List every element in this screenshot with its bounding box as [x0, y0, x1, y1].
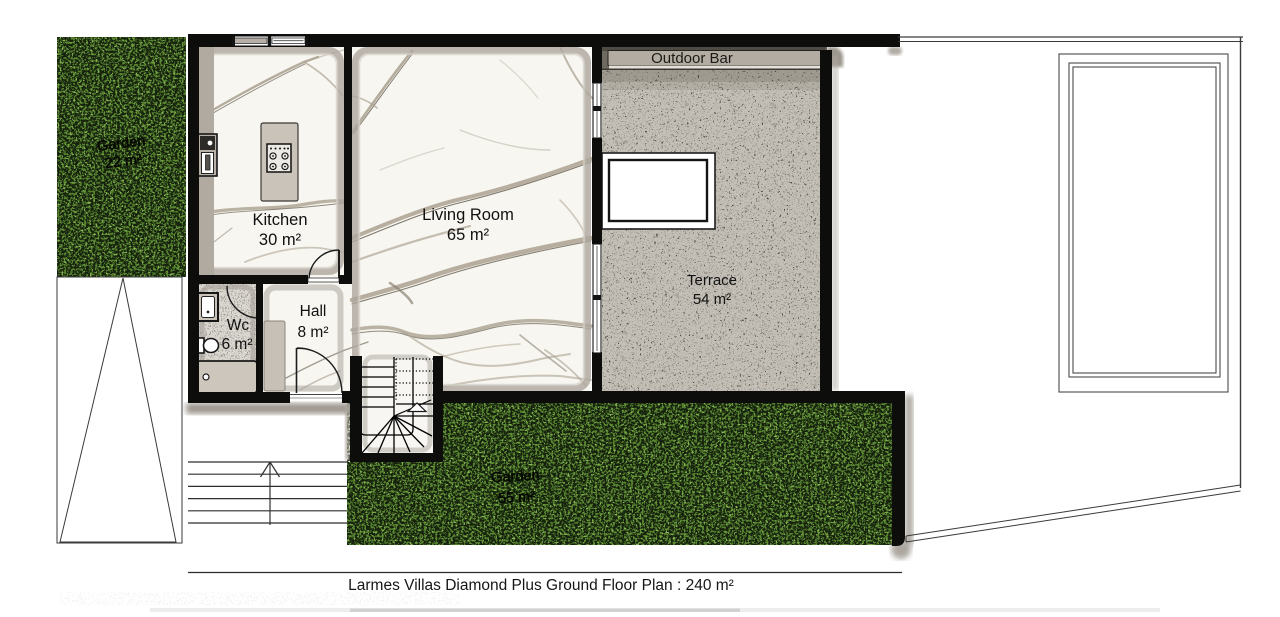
svg-text:Terrace: Terrace [687, 272, 737, 289]
svg-text:Larmes Villas Diamond Plus Gro: Larmes Villas Diamond Plus Ground Floor … [348, 577, 734, 594]
svg-text:Living Room: Living Room [422, 206, 514, 224]
svg-text:Kitchen: Kitchen [252, 211, 307, 229]
svg-text:8 m²: 8 m² [298, 324, 329, 341]
svg-text:30 m²: 30 m² [259, 231, 302, 249]
svg-text:Outdoor Bar: Outdoor Bar [651, 50, 733, 67]
svg-text:Hall: Hall [300, 303, 327, 320]
svg-text:Wc: Wc [227, 317, 250, 334]
svg-text:65 m²: 65 m² [447, 226, 490, 244]
svg-text:54 m²: 54 m² [693, 291, 731, 308]
svg-text:6 m²: 6 m² [222, 336, 253, 353]
svg-text:Garden: Garden [491, 468, 540, 487]
svg-text:55 m²: 55 m² [498, 489, 536, 507]
